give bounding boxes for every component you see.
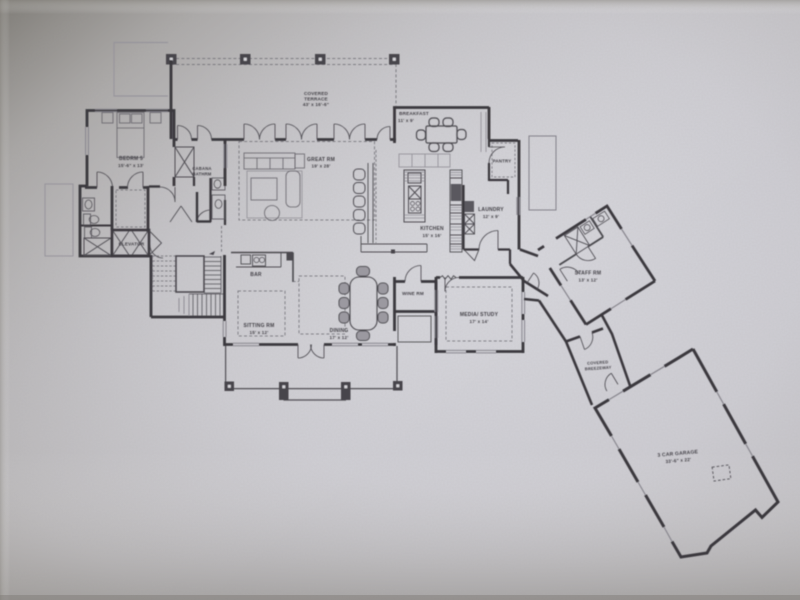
svg-text:12' x 9': 12' x 9' <box>483 214 499 219</box>
svg-text:MEDIA/ STUDY: MEDIA/ STUDY <box>460 312 499 318</box>
svg-text:PANTRY: PANTRY <box>493 159 512 164</box>
svg-text:BATHRM: BATHRM <box>192 172 211 177</box>
svg-text:15' x 12': 15' x 12' <box>250 330 269 335</box>
svg-text:19' x 28': 19' x 28' <box>312 164 331 169</box>
svg-text:KITCHEN: KITCHEN <box>420 226 444 232</box>
svg-text:17' x 14': 17' x 14' <box>470 319 489 324</box>
svg-text:LAUNDRY: LAUNDRY <box>478 207 504 213</box>
svg-text:GREAT RM: GREAT RM <box>307 157 335 163</box>
svg-text:TERRACE: TERRACE <box>304 97 328 102</box>
svg-text:43' x 16'-6": 43' x 16'-6" <box>303 102 329 107</box>
svg-text:13' x 12': 13' x 12' <box>579 278 598 283</box>
svg-text:15'-6" x 13': 15'-6" x 13' <box>118 163 144 168</box>
svg-text:COVERED: COVERED <box>304 91 329 96</box>
svg-text:STAFF RM: STAFF RM <box>575 271 602 277</box>
svg-text:CABANA: CABANA <box>192 166 211 171</box>
svg-text:17' x 12': 17' x 12' <box>330 335 349 340</box>
svg-text:BEDRM 5: BEDRM 5 <box>119 156 143 162</box>
svg-text:WINE RM: WINE RM <box>402 291 424 296</box>
svg-text:SITTING RM: SITTING RM <box>244 323 275 329</box>
svg-text:11' x 9': 11' x 9' <box>398 118 414 123</box>
svg-text:BAR: BAR <box>250 272 262 278</box>
svg-text:ELEVATOR: ELEVATOR <box>119 242 145 247</box>
svg-text:15' x 16': 15' x 16' <box>423 233 442 238</box>
svg-text:BREAKFAST: BREAKFAST <box>399 111 429 116</box>
svg-text:DINING: DINING <box>330 328 349 334</box>
